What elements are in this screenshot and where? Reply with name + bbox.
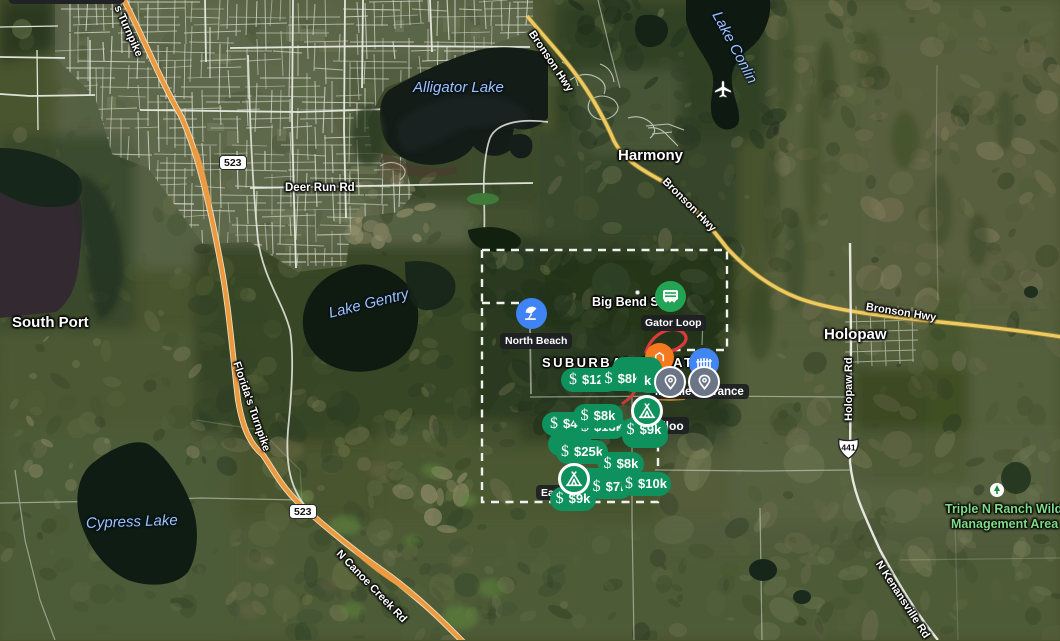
svg-text:441: 441 xyxy=(841,443,855,453)
